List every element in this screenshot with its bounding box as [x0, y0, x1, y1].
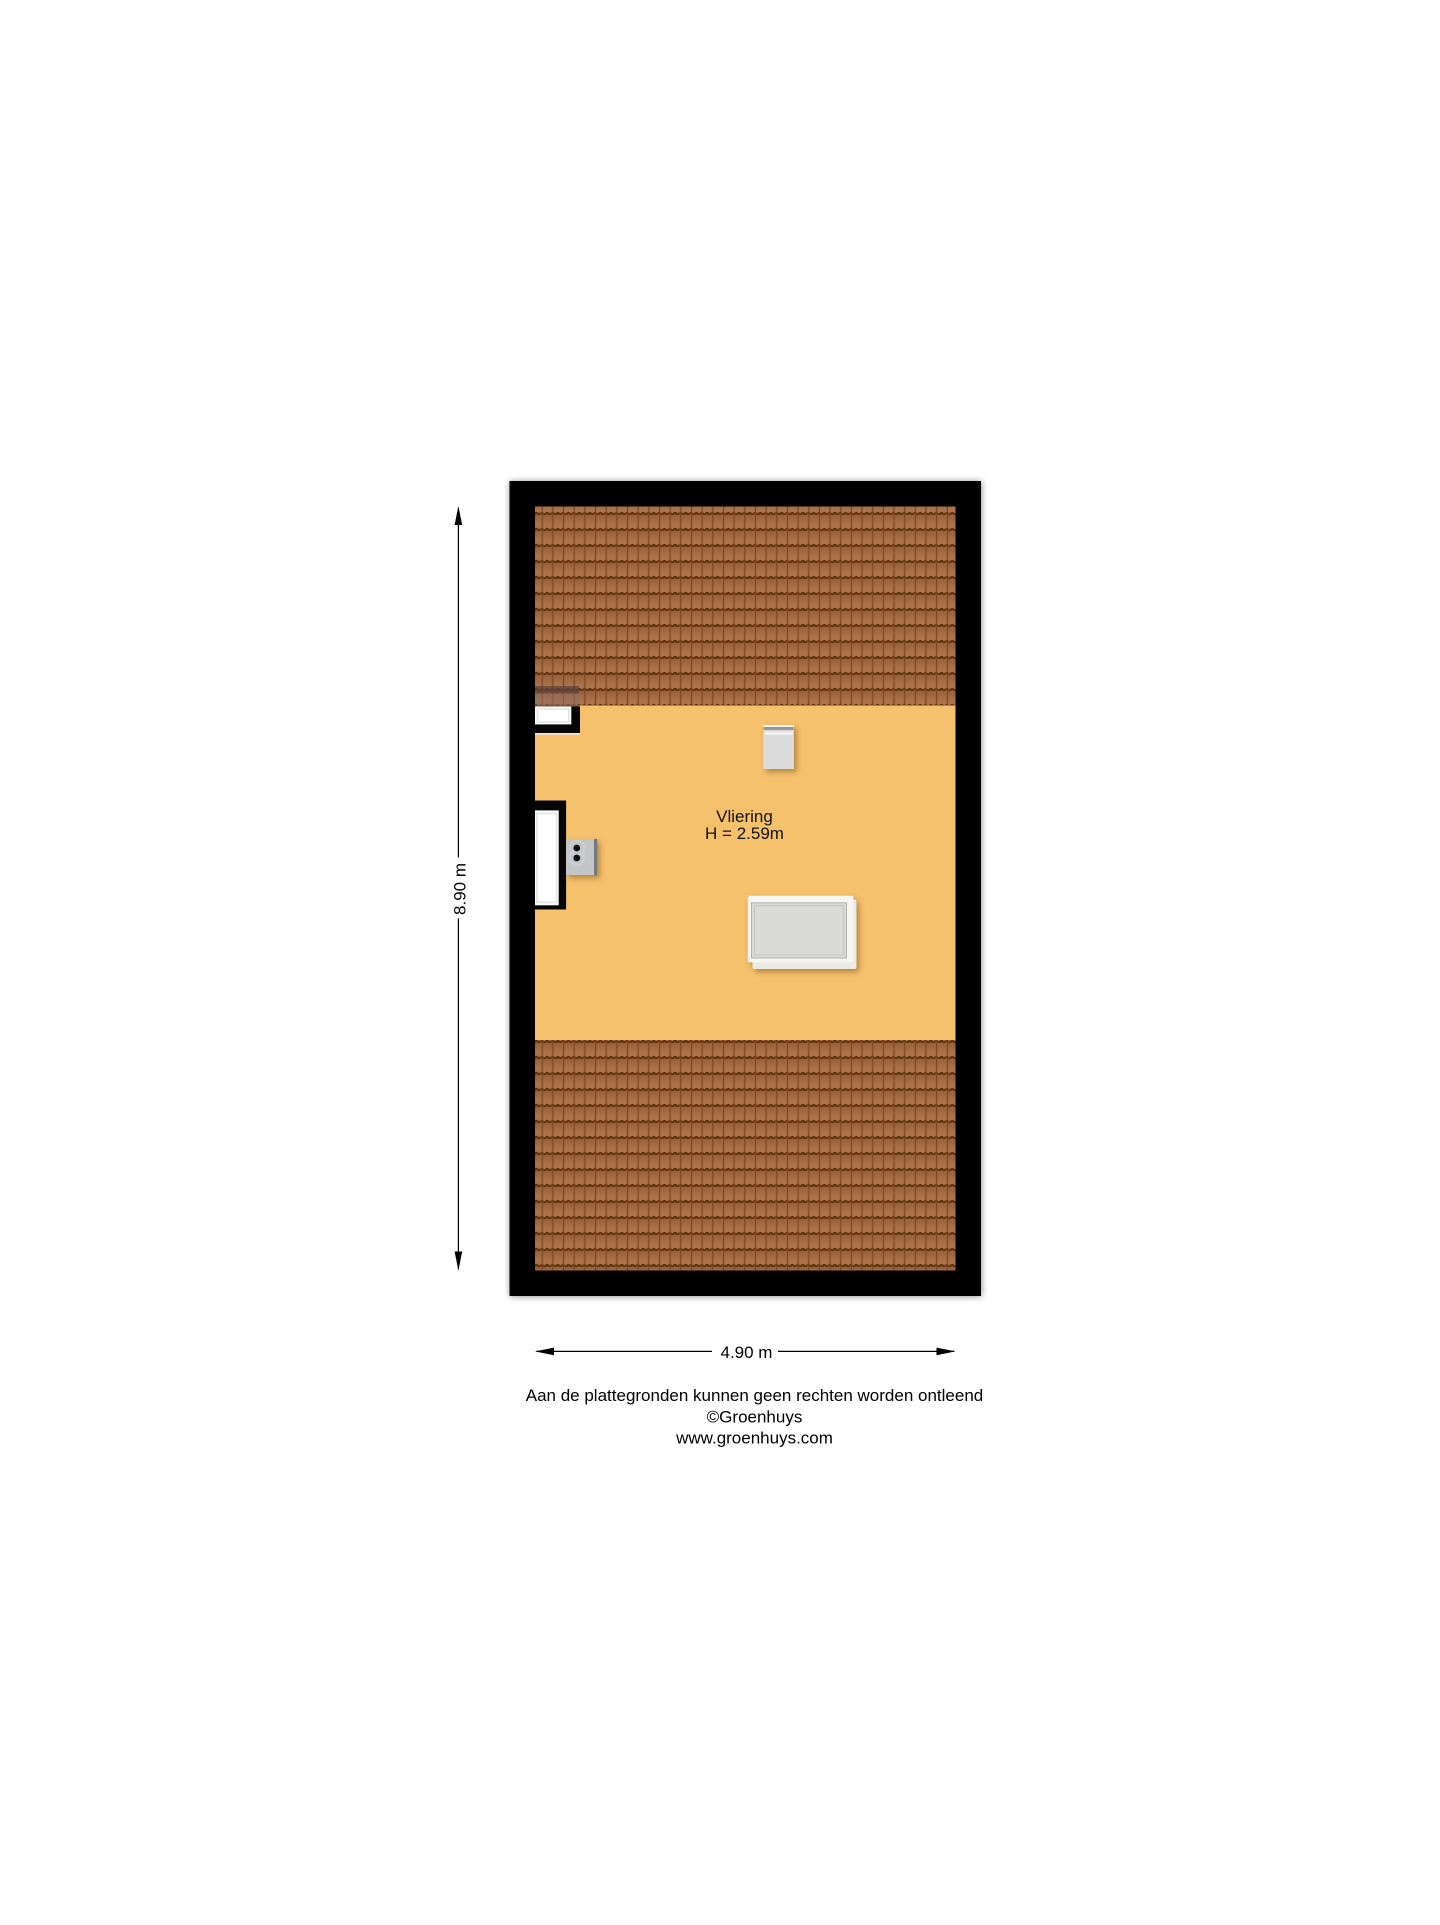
svg-text:H = 2.59m: H = 2.59m — [705, 824, 784, 843]
svg-text:©Groenhuys: ©Groenhuys — [707, 1407, 803, 1426]
svg-text:www.groenhuys.com: www.groenhuys.com — [675, 1429, 833, 1448]
svg-text:8.90 m: 8.90 m — [451, 863, 470, 915]
svg-text:4.90 m: 4.90 m — [721, 1343, 773, 1362]
svg-text:Aan de plattegronden kunnen ge: Aan de plattegronden kunnen geen rechten… — [526, 1386, 983, 1405]
